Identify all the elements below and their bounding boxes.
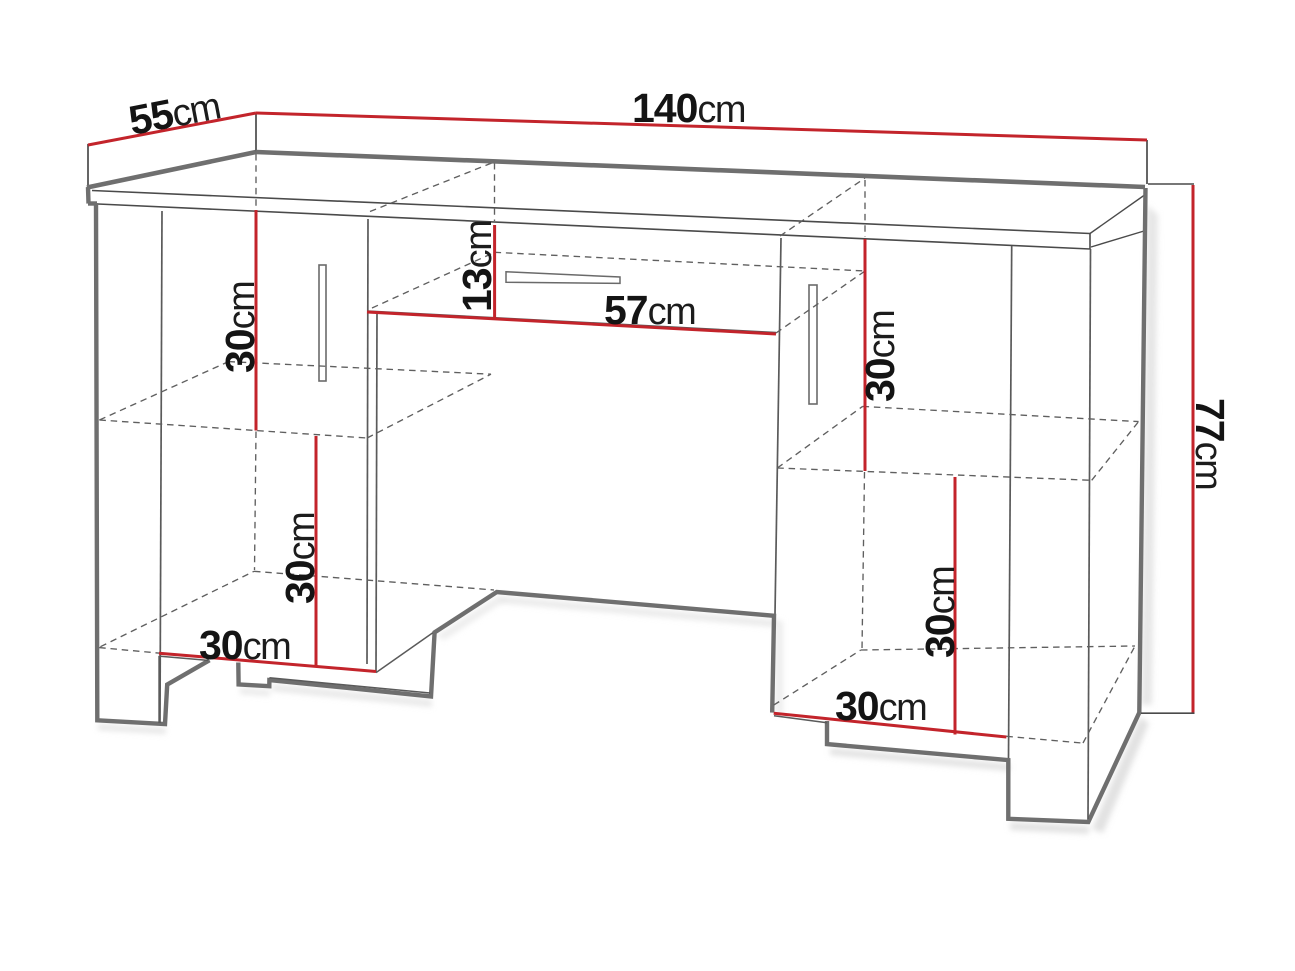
svg-text:30cm: 30cm bbox=[199, 622, 290, 668]
svg-text:140cm: 140cm bbox=[632, 85, 745, 131]
svg-text:30cm: 30cm bbox=[917, 567, 963, 658]
svg-text:13cm: 13cm bbox=[454, 221, 500, 312]
svg-text:77cm: 77cm bbox=[1187, 398, 1233, 489]
svg-text:30cm: 30cm bbox=[835, 683, 926, 729]
svg-text:30cm: 30cm bbox=[857, 311, 903, 402]
svg-text:57cm: 57cm bbox=[604, 287, 695, 333]
svg-text:30cm: 30cm bbox=[277, 513, 323, 604]
svg-text:30cm: 30cm bbox=[217, 282, 263, 373]
